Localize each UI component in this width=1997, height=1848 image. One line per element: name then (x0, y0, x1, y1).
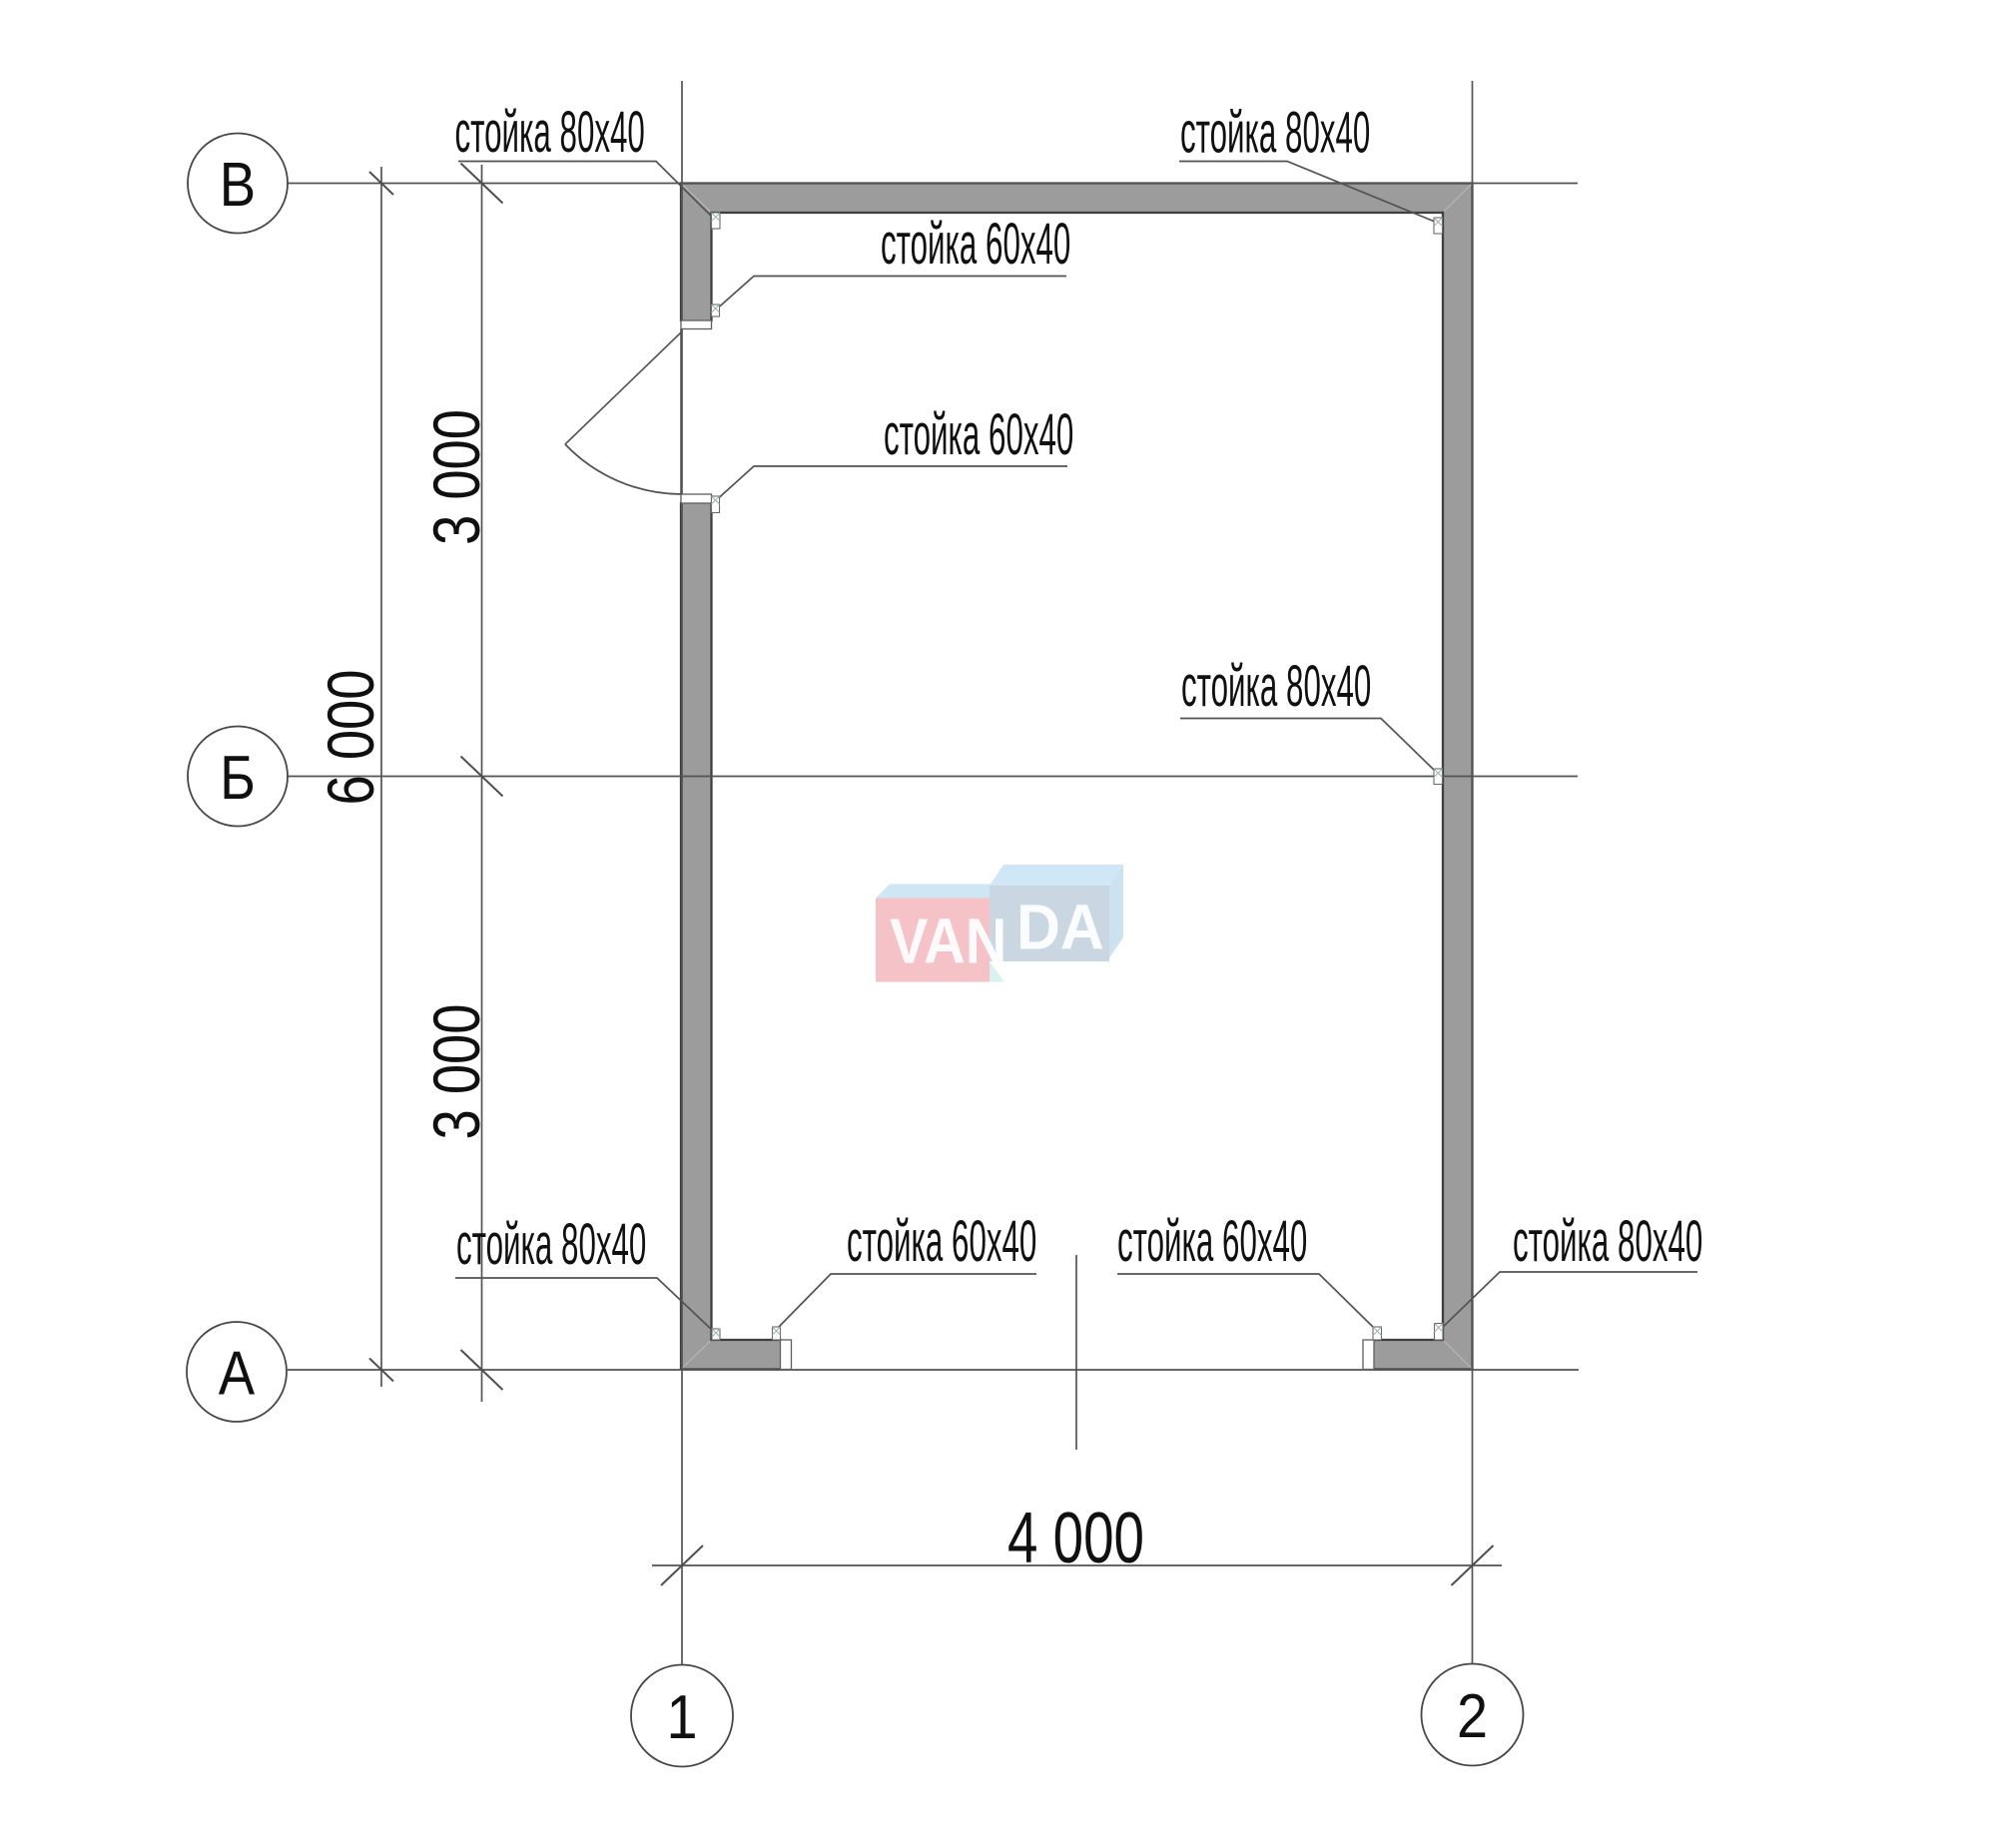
svg-text:DA: DA (1016, 892, 1104, 963)
svg-text:стойка 80х40: стойка 80х40 (1181, 654, 1371, 719)
svg-text:6 000: 6 000 (314, 669, 387, 805)
svg-text:3 000: 3 000 (419, 1003, 493, 1139)
svg-text:стойка 60х40: стойка 60х40 (881, 212, 1070, 277)
svg-text:стойка 60х40: стойка 60х40 (884, 402, 1073, 467)
svg-text:4 000: 4 000 (1007, 1498, 1144, 1578)
svg-text:1: 1 (666, 1683, 697, 1751)
svg-text:3 000: 3 000 (419, 409, 493, 545)
svg-text:В: В (220, 151, 256, 220)
svg-text:2: 2 (1457, 1682, 1488, 1750)
svg-text:стойка 60х40: стойка 60х40 (1117, 1209, 1307, 1274)
svg-text:А: А (219, 1339, 255, 1408)
svg-text:стойка 80х40: стойка 80х40 (455, 100, 645, 165)
svg-text:Б: Б (220, 744, 256, 813)
svg-text:стойка 80х40: стойка 80х40 (1513, 1209, 1702, 1274)
svg-text:стойка 80х40: стойка 80х40 (1180, 100, 1370, 165)
svg-text:стойка 80х40: стойка 80х40 (456, 1212, 646, 1277)
svg-text:VAN: VAN (890, 906, 1006, 976)
svg-text:стойка 60х40: стойка 60х40 (847, 1209, 1036, 1274)
